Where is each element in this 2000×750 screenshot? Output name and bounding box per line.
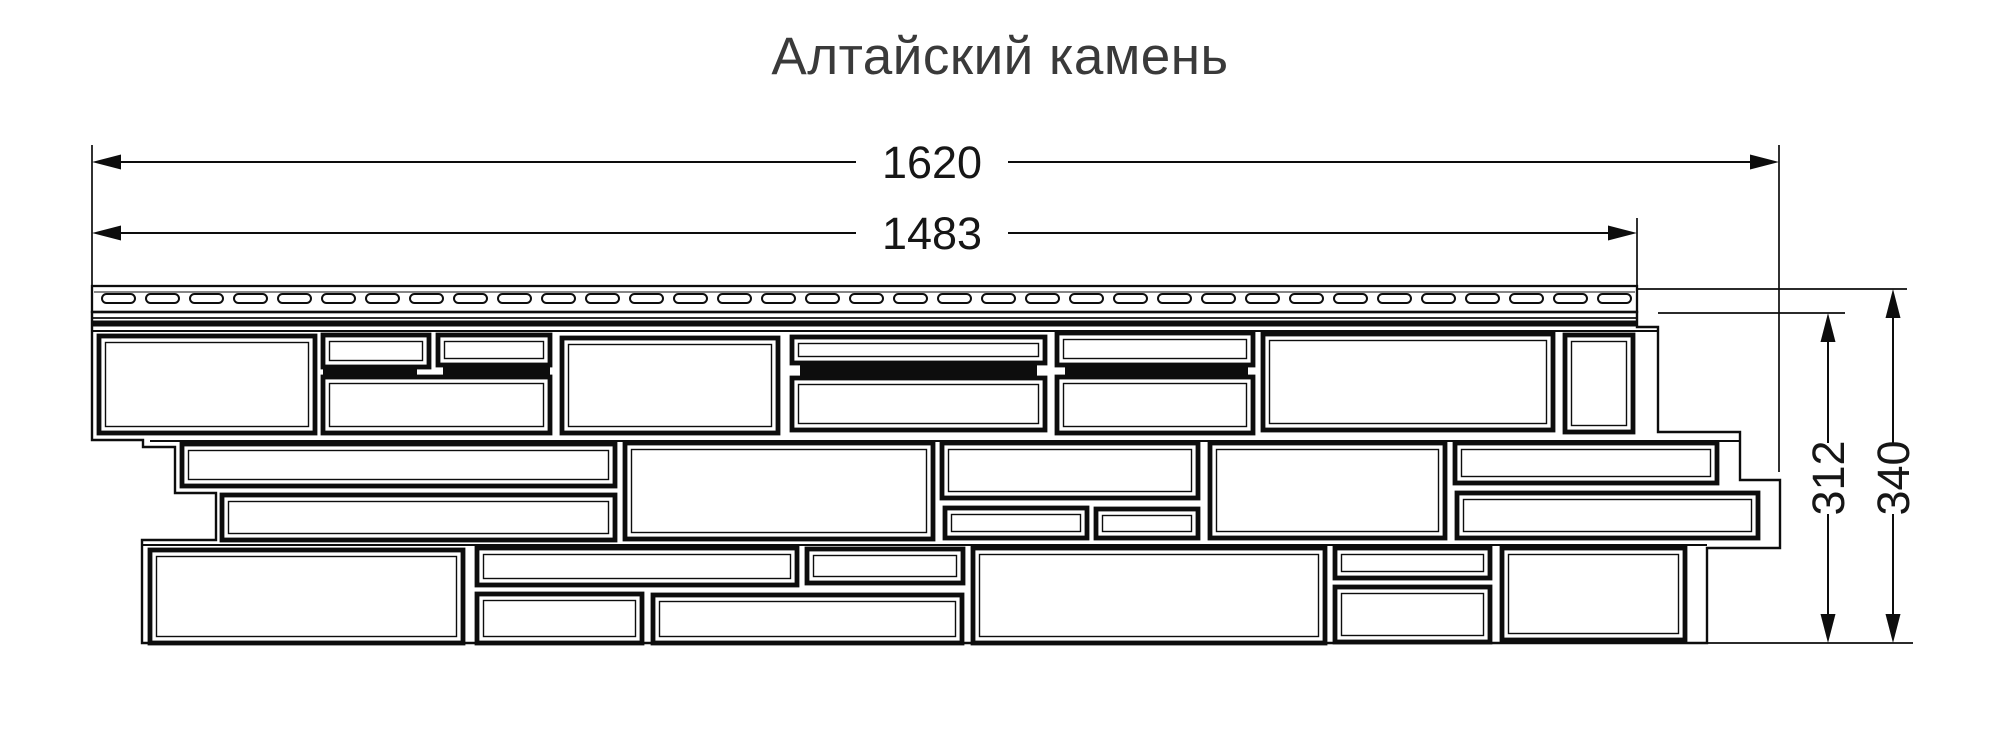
stone (477, 548, 797, 585)
stone (1057, 333, 1253, 365)
stone (1335, 587, 1490, 642)
stone-groove-band (323, 366, 417, 378)
stone (1263, 334, 1553, 430)
stone (562, 338, 778, 433)
hem-shadow-band (92, 321, 1637, 327)
nail-slot (894, 294, 927, 303)
panel (91, 286, 1780, 643)
nail-slot (1378, 294, 1411, 303)
stone (945, 508, 1087, 538)
nail-slot (1070, 294, 1103, 303)
dim-340: 340 (1868, 289, 1919, 643)
stone-groove-band (443, 366, 550, 378)
dim-340-label: 340 (1868, 440, 1919, 515)
nail-slot (1334, 294, 1367, 303)
nail-slot (630, 294, 663, 303)
nail-slot (278, 294, 311, 303)
nail-slot (366, 294, 399, 303)
diagram-stage: Алтайский камень 16201483312340 (0, 0, 2000, 750)
nail-slot (190, 294, 223, 303)
nail-slot (1510, 294, 1543, 303)
nail-slot (1026, 294, 1059, 303)
nail-slot (542, 294, 575, 303)
stone (792, 378, 1045, 430)
stone (99, 336, 315, 433)
stone (625, 443, 933, 539)
stone (1335, 548, 1490, 578)
stone-groove-band (800, 365, 1037, 377)
stone (323, 377, 550, 433)
dim-1483: 1483 (92, 208, 1637, 259)
nail-slot (1598, 294, 1631, 303)
nail-slot (938, 294, 971, 303)
stone (477, 594, 642, 643)
dim-1620: 1620 (92, 137, 1779, 188)
nail-slot (1422, 294, 1455, 303)
arrow-left-icon (92, 226, 121, 241)
nail-slot (718, 294, 751, 303)
arrow-up-icon (1821, 313, 1836, 342)
arrow-right-icon (1608, 226, 1637, 241)
nail-slot (410, 294, 443, 303)
nail-slot (1554, 294, 1587, 303)
stone (973, 548, 1325, 643)
nail-slot (102, 294, 135, 303)
dim-1483-label: 1483 (882, 208, 982, 259)
arrow-left-icon (92, 155, 121, 170)
nail-slot (806, 294, 839, 303)
stone (323, 335, 429, 367)
nail-slot (674, 294, 707, 303)
nail-slot (454, 294, 487, 303)
nail-slot (762, 294, 795, 303)
nail-slot (1246, 294, 1279, 303)
arrow-right-icon (1750, 155, 1779, 170)
stone (438, 335, 550, 365)
stone (653, 595, 962, 643)
stone (792, 337, 1045, 363)
nail-slot (1202, 294, 1235, 303)
nail-slot (850, 294, 883, 303)
stone (1096, 509, 1198, 538)
arrow-down-icon (1886, 614, 1901, 643)
arrow-up-icon (1886, 289, 1901, 318)
nail-slot (1158, 294, 1191, 303)
nail-slot (1466, 294, 1499, 303)
dim-312: 312 (1803, 313, 1854, 643)
stone (150, 550, 463, 643)
arrow-down-icon (1821, 614, 1836, 643)
stone (1502, 548, 1685, 640)
nail-slot (234, 294, 267, 303)
nail-slot (146, 294, 179, 303)
nail-slot (1114, 294, 1147, 303)
stone (942, 443, 1198, 498)
dim-312-label: 312 (1803, 440, 1854, 515)
nail-slot (982, 294, 1015, 303)
nail-slot (322, 294, 355, 303)
nail-slot (498, 294, 531, 303)
stone (1057, 377, 1253, 433)
dim-1620-label: 1620 (882, 137, 982, 188)
stone-groove-band (1065, 366, 1248, 378)
stone (1210, 443, 1445, 538)
stone (807, 549, 963, 583)
nail-slot (1290, 294, 1323, 303)
stone (1565, 335, 1633, 432)
nail-slot (586, 294, 619, 303)
siding-panel-drawing: 16201483312340 (0, 0, 2000, 750)
